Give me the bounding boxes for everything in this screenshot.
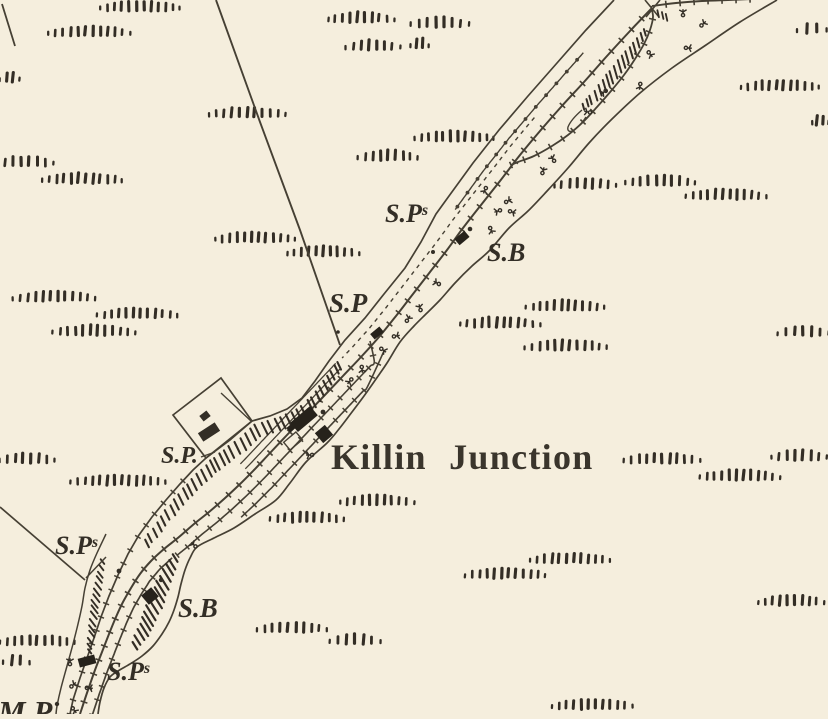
svg-text:S.P: S.P <box>329 288 368 318</box>
svg-text:S.P.: S.P. <box>161 443 198 469</box>
svg-text:S.B: S.B <box>487 238 525 267</box>
svg-text:S.Ps: S.Ps <box>107 657 150 686</box>
svg-text:Killin Junction: Killin Junction <box>331 437 594 477</box>
svg-text:S.B: S.B <box>178 593 218 623</box>
svg-text:S.Ps: S.Ps <box>55 531 98 560</box>
svg-text:M.P: M.P <box>0 694 53 714</box>
svg-text:S.Ps: S.Ps <box>385 199 428 228</box>
